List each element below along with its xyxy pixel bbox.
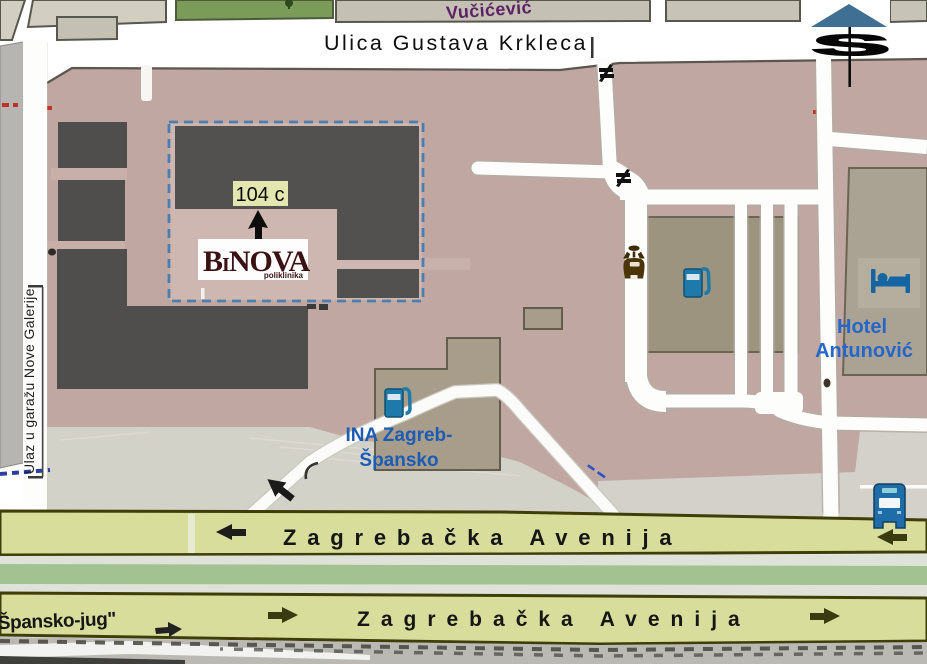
svg-text:Špansko: Špansko <box>359 449 438 471</box>
svg-text:Ulica Gustava Krkleca: Ulica Gustava Krkleca <box>324 31 588 55</box>
svg-text:Antunović: Antunović <box>815 340 913 362</box>
svg-text:Hotel: Hotel <box>837 316 887 338</box>
svg-text:Zagrebačka Avenija: Zagrebačka Avenija <box>283 525 682 550</box>
svg-text:104 c: 104 c <box>236 184 285 206</box>
svg-text:Zagrebačka Avenija: Zagrebačka Avenija <box>357 608 751 631</box>
svg-text:poliklinika: poliklinika <box>264 271 304 280</box>
svg-text:S: S <box>812 29 890 61</box>
svg-text:Ulaz u garažu Nove Galerije: Ulaz u garažu Nove Galerije <box>21 288 37 474</box>
svg-text:Špansko-jug": Špansko-jug" <box>0 608 116 634</box>
svg-text:INA Zagreb-: INA Zagreb- <box>346 425 453 446</box>
